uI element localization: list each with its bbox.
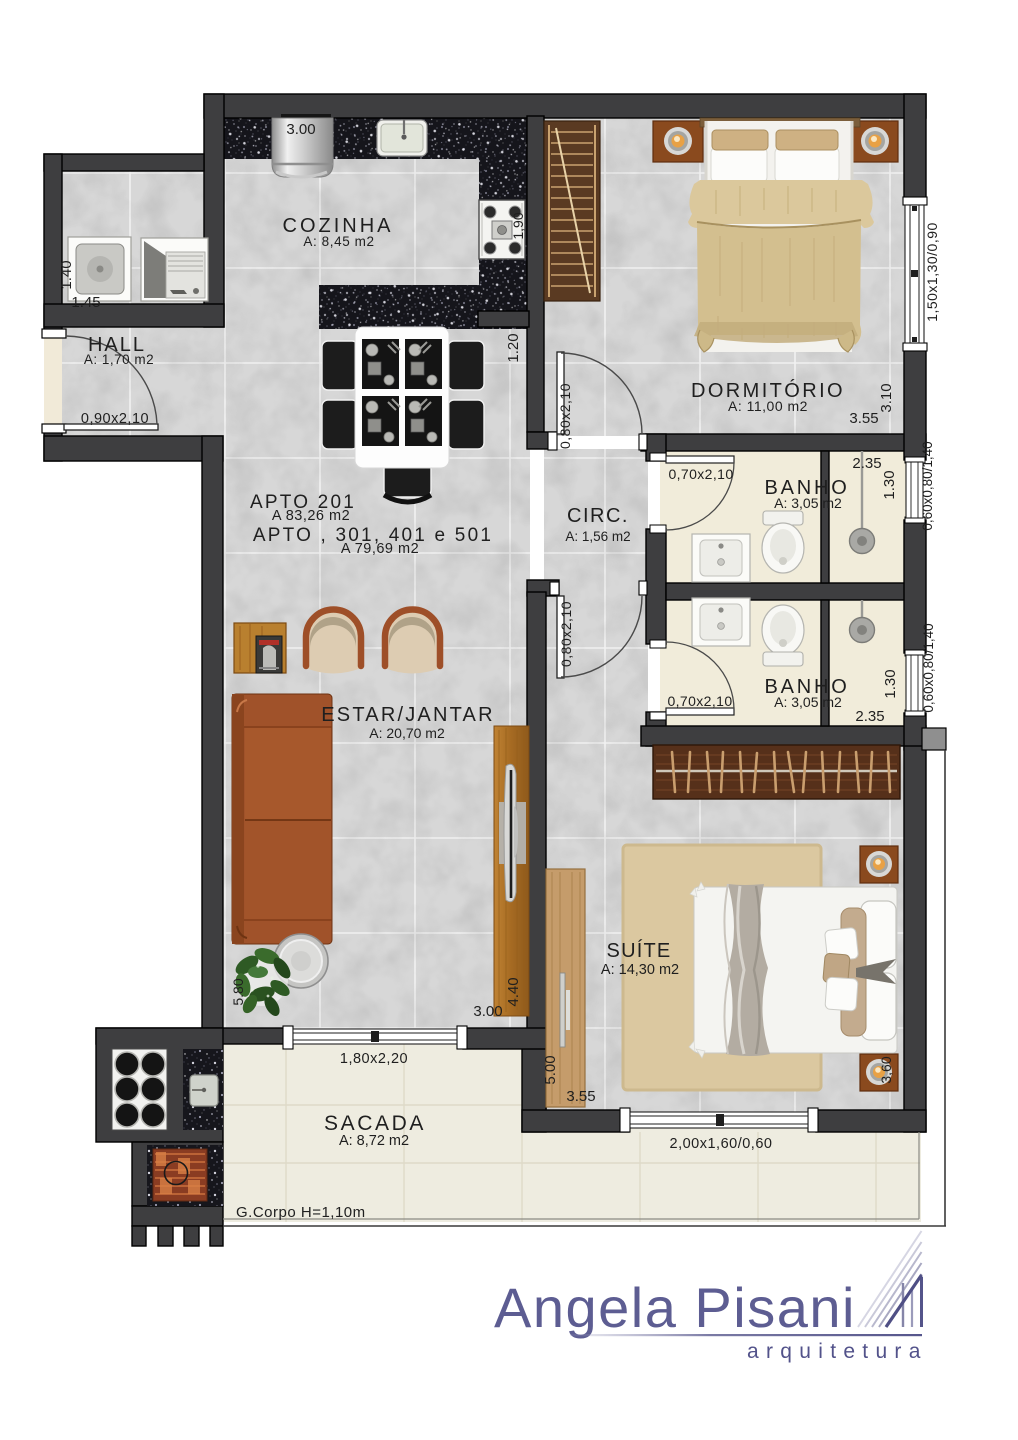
svg-text:5.80: 5.80 <box>230 978 246 1005</box>
svg-text:0,80x2,10: 0,80x2,10 <box>558 601 574 667</box>
svg-text:0,60x0,80/1,40: 0,60x0,80/1,40 <box>920 441 935 530</box>
svg-text:4.40: 4.40 <box>505 977 522 1006</box>
svg-text:1.30: 1.30 <box>882 669 899 698</box>
svg-text:3.55: 3.55 <box>849 410 878 427</box>
svg-text:G.Corpo H=1,10m: G.Corpo H=1,10m <box>236 1204 366 1221</box>
svg-text:ESTAR/JANTAR: ESTAR/JANTAR <box>321 704 494 726</box>
svg-text:A 83,26 m2: A 83,26 m2 <box>272 508 350 524</box>
svg-text:A: 1,56 m2: A: 1,56 m2 <box>565 529 630 544</box>
svg-text:CIRC.: CIRC. <box>567 505 629 527</box>
svg-text:3.00: 3.00 <box>473 1003 502 1020</box>
svg-text:3.55: 3.55 <box>566 1088 595 1105</box>
svg-text:0,70x2,10: 0,70x2,10 <box>668 466 733 482</box>
svg-text:A: 3,05 m2: A: 3,05 m2 <box>774 495 842 511</box>
svg-text:2.35: 2.35 <box>852 455 881 472</box>
svg-text:1.45: 1.45 <box>71 294 100 311</box>
svg-text:A: 8,45 m2: A: 8,45 m2 <box>303 234 374 249</box>
svg-text:0,70x2,10: 0,70x2,10 <box>667 693 732 709</box>
svg-text:1.30: 1.30 <box>881 470 898 499</box>
svg-text:1.40: 1.40 <box>58 260 75 289</box>
svg-text:A: 11,00 m2: A: 11,00 m2 <box>728 398 808 414</box>
svg-text:2,00x1,60/0,60: 2,00x1,60/0,60 <box>670 1136 773 1152</box>
svg-text:2.35: 2.35 <box>855 708 884 725</box>
svg-text:1.20: 1.20 <box>505 333 522 362</box>
svg-text:5.00: 5.00 <box>542 1055 559 1084</box>
svg-text:3.10: 3.10 <box>878 383 895 412</box>
svg-text:A: 20,70 m2: A: 20,70 m2 <box>369 725 445 741</box>
svg-text:arquitetura: arquitetura <box>747 1340 928 1363</box>
svg-text:3.00: 3.00 <box>286 121 315 138</box>
svg-text:0,80x2,10: 0,80x2,10 <box>557 383 573 449</box>
svg-text:A: 14,30 m2: A: 14,30 m2 <box>601 962 679 978</box>
svg-text:A 79,69 m2: A 79,69 m2 <box>341 541 419 557</box>
svg-text:A: 1,70 m2: A: 1,70 m2 <box>84 352 154 367</box>
svg-text:1,80x2,20: 1,80x2,20 <box>340 1051 408 1067</box>
svg-text:SACADA: SACADA <box>324 1112 426 1135</box>
svg-text:A: 3,05 m2: A: 3,05 m2 <box>774 694 842 710</box>
svg-text:0,90x2,10: 0,90x2,10 <box>81 411 149 427</box>
svg-text:1,50x1,30/0,90: 1,50x1,30/0,90 <box>924 222 940 322</box>
svg-text:A: 8,72 m2: A: 8,72 m2 <box>339 1133 409 1149</box>
svg-text:Angela Pisani: Angela Pisani <box>494 1276 856 1339</box>
svg-text:SUÍTE: SUÍTE <box>607 939 672 962</box>
svg-text:3,60: 3,60 <box>878 1056 894 1083</box>
svg-text:1,90: 1,90 <box>510 212 526 239</box>
svg-text:0,60x0,80/1,40: 0,60x0,80/1,40 <box>921 623 936 712</box>
